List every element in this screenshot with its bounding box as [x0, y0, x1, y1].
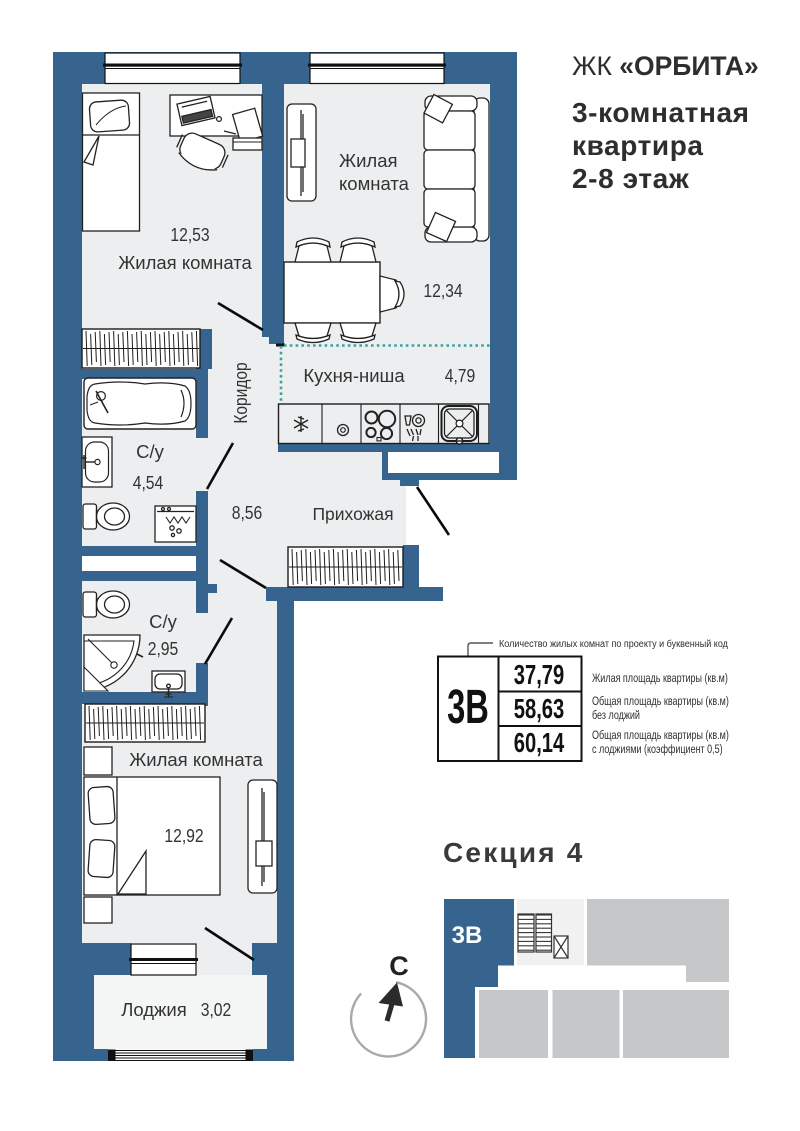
svg-text:Жилая: Жилая [339, 150, 398, 171]
svg-text:37,79: 37,79 [514, 660, 564, 691]
svg-text:2-8 этаж: 2-8 этаж [572, 163, 690, 194]
svg-text:Общая площадь квартиры (кв.м): Общая площадь квартиры (кв.м) [592, 695, 729, 709]
svg-text:4,79: 4,79 [445, 365, 476, 387]
svg-text:С: С [389, 951, 409, 981]
svg-text:3В: 3В [452, 922, 483, 949]
svg-text:Общая площадь квартиры (кв.м): Общая площадь квартиры (кв.м) [592, 729, 729, 743]
svg-text:Секция 4: Секция 4 [443, 837, 585, 868]
svg-text:60,14: 60,14 [514, 728, 565, 759]
svg-text:8,56: 8,56 [232, 502, 263, 524]
svg-text:12,53: 12,53 [170, 224, 209, 246]
svg-text:квартира: квартира [572, 130, 704, 161]
svg-text:3,02: 3,02 [201, 999, 232, 1021]
svg-text:без лоджий: без лоджий [592, 709, 640, 723]
svg-text:Жилая площадь квартиры (кв.м): Жилая площадь квартиры (кв.м) [592, 672, 728, 686]
svg-text:3-комнатная: 3-комнатная [572, 97, 750, 128]
svg-text:Коридор: Коридор [231, 362, 252, 423]
svg-text:с лоджиями (коэффициент 0,5): с лоджиями (коэффициент 0,5) [592, 743, 723, 757]
svg-text:12,92: 12,92 [164, 825, 203, 847]
svg-text:2,95: 2,95 [148, 638, 179, 660]
svg-text:С/у: С/у [149, 611, 178, 632]
svg-text:Количество жилых комнат по про: Количество жилых комнат по проекту и бук… [499, 638, 728, 650]
svg-text:58,63: 58,63 [514, 694, 564, 725]
svg-text:Лоджия: Лоджия [121, 999, 187, 1020]
svg-text:12,34: 12,34 [423, 280, 463, 302]
svg-text:С/у: С/у [136, 441, 165, 462]
svg-text:ЖК «ОРБИТА»: ЖК «ОРБИТА» [572, 51, 759, 81]
svg-text:Жилая комната: Жилая комната [118, 252, 252, 273]
svg-text:4,54: 4,54 [133, 472, 164, 494]
svg-text:Кухня-ниша: Кухня-ниша [303, 365, 405, 386]
svg-text:3В: 3В [447, 680, 489, 734]
svg-text:Прихожая: Прихожая [312, 504, 393, 524]
svg-text:комната: комната [339, 173, 410, 194]
svg-text:Жилая комната: Жилая комната [129, 749, 263, 770]
